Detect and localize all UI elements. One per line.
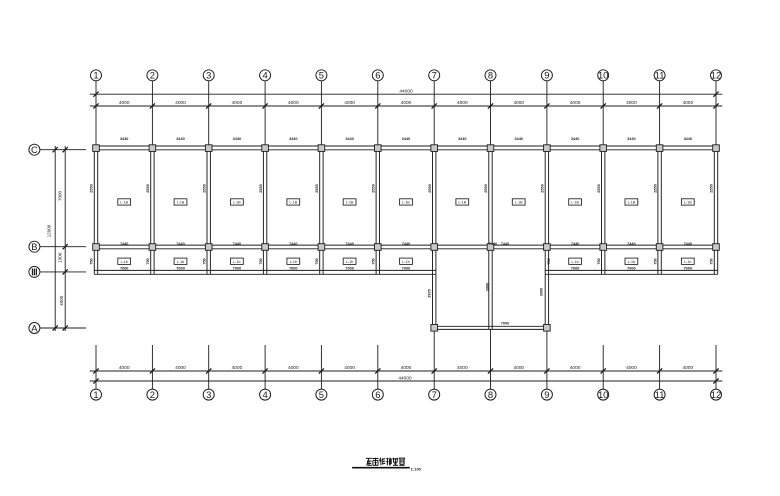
svg-text:7440: 7440 [176,242,184,246]
svg-text:750: 750 [597,258,601,264]
svg-text:7000: 7000 [176,267,184,271]
svg-text:3440: 3440 [514,137,522,141]
svg-text:L-1b: L-1b [684,260,691,264]
svg-text:4000: 4000 [626,365,637,371]
svg-text:750: 750 [202,258,206,264]
svg-text:C: C [31,144,38,155]
svg-text:12: 12 [711,389,721,400]
svg-text:1:100: 1:100 [411,466,422,471]
svg-text:750: 750 [90,258,94,264]
svg-text:4000: 4000 [288,365,299,371]
svg-text:3440: 3440 [345,137,353,141]
svg-text:3440: 3440 [458,137,466,141]
svg-text:750: 750 [259,258,263,264]
svg-text:2550: 2550 [428,184,432,192]
svg-text:7440: 7440 [489,242,497,246]
svg-text:7000: 7000 [402,267,410,271]
svg-text:7440: 7440 [120,242,128,246]
svg-text:L-1B: L-1B [346,201,354,205]
svg-text:9: 9 [544,389,549,400]
svg-text:3: 3 [206,70,211,81]
svg-text:7440: 7440 [684,242,692,246]
svg-text:3440: 3440 [233,137,241,141]
svg-text:3440: 3440 [402,137,410,141]
svg-text:7440: 7440 [233,242,241,246]
svg-text:11: 11 [655,389,665,400]
svg-text:1900: 1900 [58,252,63,263]
svg-text:4000: 4000 [119,100,130,106]
svg-text:L-1B: L-1B [459,201,467,205]
svg-text:A: A [31,322,38,333]
svg-text:4000: 4000 [175,365,186,371]
svg-text:L-1b: L-1b [402,260,409,264]
svg-text:7000: 7000 [571,267,579,271]
svg-text:L-1B: L-1B [120,201,128,205]
svg-text:4000: 4000 [232,100,243,106]
svg-text:4000: 4000 [513,100,524,106]
svg-text:4000: 4000 [457,100,468,106]
svg-text:44000: 44000 [398,375,412,381]
svg-text:4000: 4000 [344,100,355,106]
svg-text:L-1B: L-1B [628,201,636,205]
svg-text:L-1B: L-1B [290,201,298,205]
svg-text:4000: 4000 [513,365,524,371]
svg-text:L-1B: L-1B [233,201,241,205]
svg-text:1: 1 [93,389,98,400]
svg-text:5: 5 [319,70,324,81]
svg-text:2550: 2550 [710,184,714,192]
svg-text:7000: 7000 [627,267,635,271]
svg-text:7440: 7440 [501,242,509,246]
svg-text:4000: 4000 [288,100,299,106]
svg-text:44000: 44000 [399,88,413,94]
svg-text:3440: 3440 [289,137,297,141]
svg-text:2550: 2550 [372,184,376,192]
svg-text:12: 12 [711,70,721,81]
svg-text:7000: 7000 [501,322,509,326]
svg-text:4000: 4000 [570,365,581,371]
svg-text:L-1B: L-1B [684,201,692,205]
svg-text:3440: 3440 [120,137,128,141]
svg-text:3440: 3440 [684,137,692,141]
svg-text:3440: 3440 [627,137,635,141]
svg-text:2: 2 [150,70,155,81]
svg-text:750: 750 [146,258,150,264]
svg-text:3440: 3440 [571,137,579,141]
svg-text:L-1B: L-1B [571,201,579,205]
svg-text:2550: 2550 [597,184,601,192]
svg-text:2550: 2550 [146,184,150,192]
svg-text:750: 750 [710,258,714,264]
svg-text:3900: 3900 [540,288,544,296]
svg-text:L-1B: L-1B [515,201,523,205]
svg-text:2550: 2550 [484,184,488,192]
svg-text:7440: 7440 [345,242,353,246]
svg-text:6: 6 [375,389,380,400]
svg-text:7440: 7440 [402,242,410,246]
svg-text:7: 7 [432,389,437,400]
svg-text:L-1b: L-1b [571,260,578,264]
svg-text:L-1b: L-1b [121,260,128,264]
svg-text:2550: 2550 [202,184,206,192]
svg-text:B: B [31,241,37,252]
svg-text:7000: 7000 [345,267,353,271]
svg-text:8: 8 [488,70,493,81]
svg-text:10: 10 [598,70,608,81]
svg-text:7000: 7000 [289,267,297,271]
svg-text:4000: 4000 [570,100,581,106]
svg-text:L-1b: L-1b [233,260,240,264]
svg-text:4000: 4000 [401,100,412,106]
svg-text:7000: 7000 [233,267,241,271]
svg-text:6: 6 [375,70,380,81]
svg-text:9: 9 [544,70,549,81]
svg-text:7440: 7440 [289,242,297,246]
svg-text:1: 1 [93,70,98,81]
svg-text:2550: 2550 [541,184,545,192]
svg-text:7: 7 [432,70,437,81]
svg-text:2550: 2550 [90,184,94,192]
svg-text:4000: 4000 [119,365,130,371]
svg-text:L-1b: L-1b [346,260,353,264]
svg-text:4000: 4000 [457,365,468,371]
svg-text:3970: 3970 [428,289,432,297]
svg-text:2550: 2550 [259,184,263,192]
svg-text:7000: 7000 [120,267,128,271]
svg-text:2550: 2550 [315,184,319,192]
svg-text:4000: 4000 [682,100,693,106]
svg-text:2550: 2550 [653,184,657,192]
svg-text:L-1b: L-1b [290,260,297,264]
svg-text:4000: 4000 [344,365,355,371]
svg-text:750: 750 [372,258,376,264]
svg-text:8: 8 [488,389,493,400]
svg-text:4: 4 [262,389,267,400]
svg-text:2: 2 [150,389,155,400]
svg-text:3440: 3440 [176,137,184,141]
svg-text:3: 3 [206,389,211,400]
svg-text:4000: 4000 [175,100,186,106]
svg-text:3900: 3900 [485,283,489,291]
svg-text:10: 10 [598,389,608,400]
svg-text:750: 750 [315,258,319,264]
svg-text:12900: 12900 [47,224,52,237]
svg-text:4000: 4000 [682,365,693,371]
svg-text:4: 4 [262,70,267,81]
svg-text:4000: 4000 [626,100,637,106]
svg-text:750: 750 [547,258,551,264]
svg-text:11: 11 [655,70,665,81]
svg-text:4000: 4000 [401,365,412,371]
svg-text:7000: 7000 [684,267,692,271]
svg-text:750: 750 [653,258,657,264]
svg-text:7440: 7440 [571,242,579,246]
svg-text:5: 5 [319,389,324,400]
svg-text:L-1B: L-1B [177,201,185,205]
svg-text:7000: 7000 [58,190,63,201]
svg-text:4000: 4000 [232,365,243,371]
svg-text:L-1b: L-1b [628,260,635,264]
svg-text:L-1B: L-1B [402,201,410,205]
svg-text:4000: 4000 [59,295,64,306]
svg-text:L-1b: L-1b [177,260,184,264]
svg-text:7440: 7440 [627,242,635,246]
